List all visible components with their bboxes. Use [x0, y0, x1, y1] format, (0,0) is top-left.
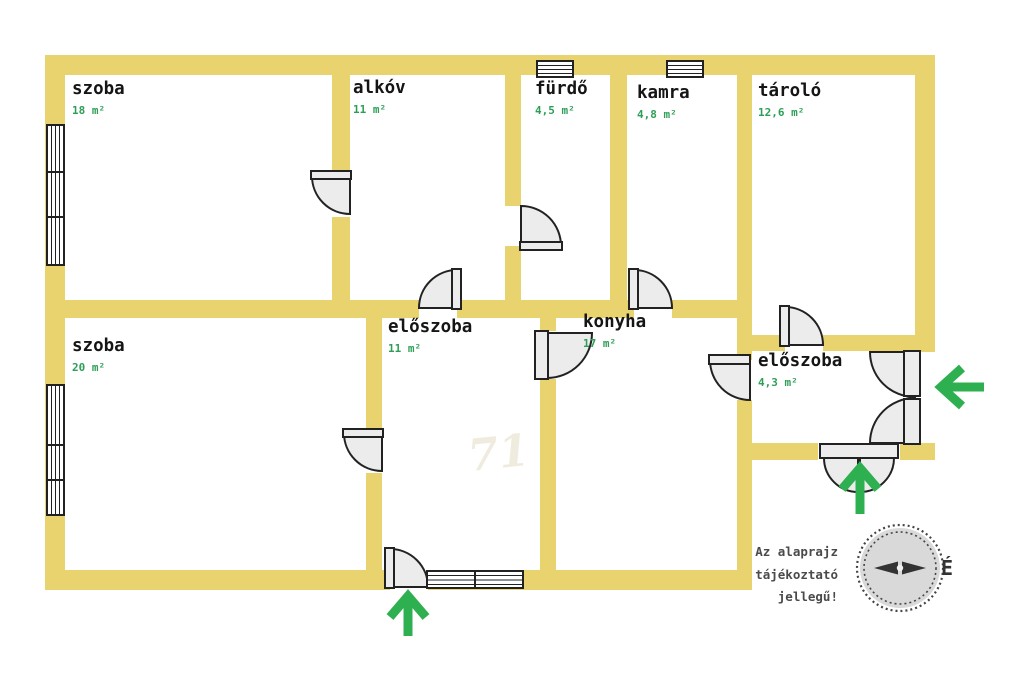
room-area: 17 m²	[583, 338, 646, 349]
disclaimer-line: Az alaprajz	[668, 541, 838, 564]
wall-segment	[505, 75, 521, 206]
room-name: előszoba	[388, 318, 472, 336]
window-north-furdo	[537, 61, 573, 77]
compass-icon	[857, 525, 943, 611]
wall-segment	[505, 246, 521, 318]
disclaimer-line: tájékoztató	[668, 564, 838, 587]
room-name: konyha	[583, 313, 646, 331]
room-label-kamra: kamra 4,8 m²	[637, 84, 690, 120]
room-label-tarolo: tároló 12,6 m²	[758, 82, 821, 118]
door-swing-kamra	[629, 269, 672, 309]
door-swing-konyha-eloszoba	[709, 355, 750, 400]
room-area: 12,6 m²	[758, 107, 821, 118]
disclaimer-line: jellegű!	[668, 586, 838, 609]
disclaimer-text: Az alaprajz tájékoztató jellegű!	[668, 541, 838, 609]
wall-segment	[610, 75, 627, 300]
room-area: 4,5 m²	[535, 105, 588, 116]
wall-segment	[45, 55, 935, 75]
wall-segment	[45, 570, 390, 590]
compass-north-label: É	[941, 556, 953, 580]
room-label-konyha: konyha 17 m²	[583, 313, 646, 349]
room-name: szoba	[72, 80, 125, 98]
door-swing-alkov	[419, 269, 461, 309]
door-swing-tarolo	[780, 306, 823, 346]
room-name: alkóv	[353, 79, 406, 97]
room-name: szoba	[72, 337, 125, 355]
room-label-alkov: alkóv 11 m²	[353, 79, 406, 115]
window-west-upper	[47, 125, 64, 265]
wall-segment	[366, 473, 382, 590]
wall-segment	[737, 75, 752, 360]
room-name: tároló	[758, 82, 821, 100]
wall-segment	[540, 300, 556, 331]
room-area: 4,3 m²	[758, 377, 842, 388]
door-swing-szoba20	[343, 429, 383, 471]
room-label-eloszoba-43: előszoba 4,3 m²	[758, 352, 842, 388]
wall-segment	[900, 443, 935, 460]
double-door-east-entrance	[870, 351, 920, 444]
room-name: előszoba	[758, 352, 842, 370]
wall-segment	[752, 443, 818, 460]
watermark: 71	[466, 425, 532, 482]
entrance-arrow-east	[941, 368, 984, 406]
room-area: 4,8 m²	[637, 109, 690, 120]
room-area: 20 m²	[72, 362, 125, 373]
room-label-szoba-18: szoba 18 m²	[72, 80, 125, 116]
wall-segment	[332, 75, 350, 175]
window-west-lower	[47, 385, 64, 515]
room-area: 11 m²	[353, 104, 406, 115]
room-label-eloszoba-11: előszoba 11 m²	[388, 318, 472, 354]
room-name: fürdő	[535, 80, 588, 98]
room-name: kamra	[637, 84, 690, 102]
wall-segment	[366, 300, 382, 433]
room-area: 18 m²	[72, 105, 125, 116]
window-south-eloszoba	[427, 571, 523, 588]
wall-segment	[915, 55, 935, 352]
room-label-furdo: fürdő 4,5 m²	[535, 80, 588, 116]
wall-segment	[45, 300, 419, 318]
window-north-kamra	[667, 61, 703, 77]
entrance-arrow-south-main	[390, 596, 426, 636]
wall-segment	[540, 379, 556, 590]
door-swing-szoba18	[311, 171, 351, 214]
door-swing-furdo	[520, 206, 562, 250]
wall-segment	[823, 335, 915, 351]
room-area: 11 m²	[388, 343, 472, 354]
room-label-szoba-20: szoba 20 m²	[72, 337, 125, 373]
floor-plan-drawing	[0, 0, 1024, 692]
floor-plan-page: szoba 18 m² alkóv 11 m² fürdő 4,5 m² kam…	[0, 0, 1024, 692]
door-swing-main-entrance	[385, 548, 428, 588]
